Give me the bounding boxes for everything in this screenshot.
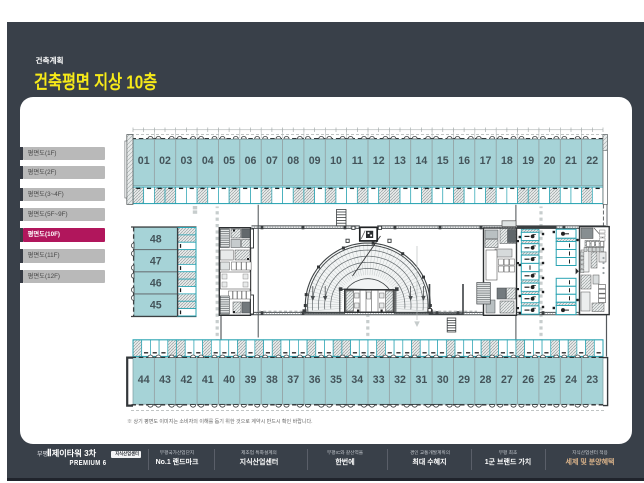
svg-text:13: 13 [394, 155, 406, 167]
svg-text:07: 07 [266, 155, 278, 167]
svg-text:06: 06 [245, 155, 257, 167]
svg-text:33: 33 [373, 374, 385, 386]
svg-text:36: 36 [309, 374, 321, 386]
svg-text:32: 32 [394, 374, 406, 386]
svg-text:25: 25 [544, 374, 556, 386]
svg-text:41: 41 [202, 374, 214, 386]
svg-text:23: 23 [586, 374, 598, 386]
svg-text:10: 10 [330, 155, 342, 167]
svg-text:15: 15 [437, 155, 449, 167]
svg-text:31: 31 [416, 374, 428, 386]
svg-text:44: 44 [138, 374, 150, 386]
svg-text:30: 30 [437, 374, 449, 386]
svg-text:20: 20 [544, 155, 556, 167]
svg-text:28: 28 [480, 374, 492, 386]
svg-text:29: 29 [458, 374, 470, 386]
svg-text:12: 12 [373, 155, 385, 167]
svg-text:14: 14 [416, 155, 428, 167]
svg-text:05: 05 [223, 155, 235, 167]
svg-text:19: 19 [522, 155, 534, 167]
svg-text:38: 38 [266, 374, 278, 386]
svg-text:04: 04 [202, 155, 214, 167]
svg-text:21: 21 [565, 155, 577, 167]
svg-text:27: 27 [501, 374, 513, 386]
svg-text:22: 22 [586, 155, 598, 167]
svg-text:40: 40 [223, 374, 235, 386]
svg-text:02: 02 [159, 155, 171, 167]
svg-text:37: 37 [287, 374, 299, 386]
svg-text:17: 17 [480, 155, 492, 167]
svg-text:09: 09 [309, 155, 321, 167]
svg-text:47: 47 [150, 255, 162, 267]
svg-text:01: 01 [138, 155, 150, 167]
svg-text:03: 03 [181, 155, 193, 167]
svg-text:48: 48 [150, 233, 162, 245]
svg-text:42: 42 [181, 374, 193, 386]
svg-text:45: 45 [150, 300, 162, 312]
svg-text:16: 16 [458, 155, 470, 167]
svg-text:11: 11 [352, 155, 363, 167]
svg-text:26: 26 [522, 374, 534, 386]
svg-text:35: 35 [330, 374, 342, 386]
svg-text:08: 08 [287, 155, 299, 167]
svg-text:18: 18 [501, 155, 513, 167]
svg-text:34: 34 [351, 374, 363, 386]
svg-text:43: 43 [159, 374, 171, 386]
svg-text:24: 24 [565, 374, 577, 386]
svg-text:46: 46 [150, 278, 162, 290]
svg-text:39: 39 [245, 374, 257, 386]
